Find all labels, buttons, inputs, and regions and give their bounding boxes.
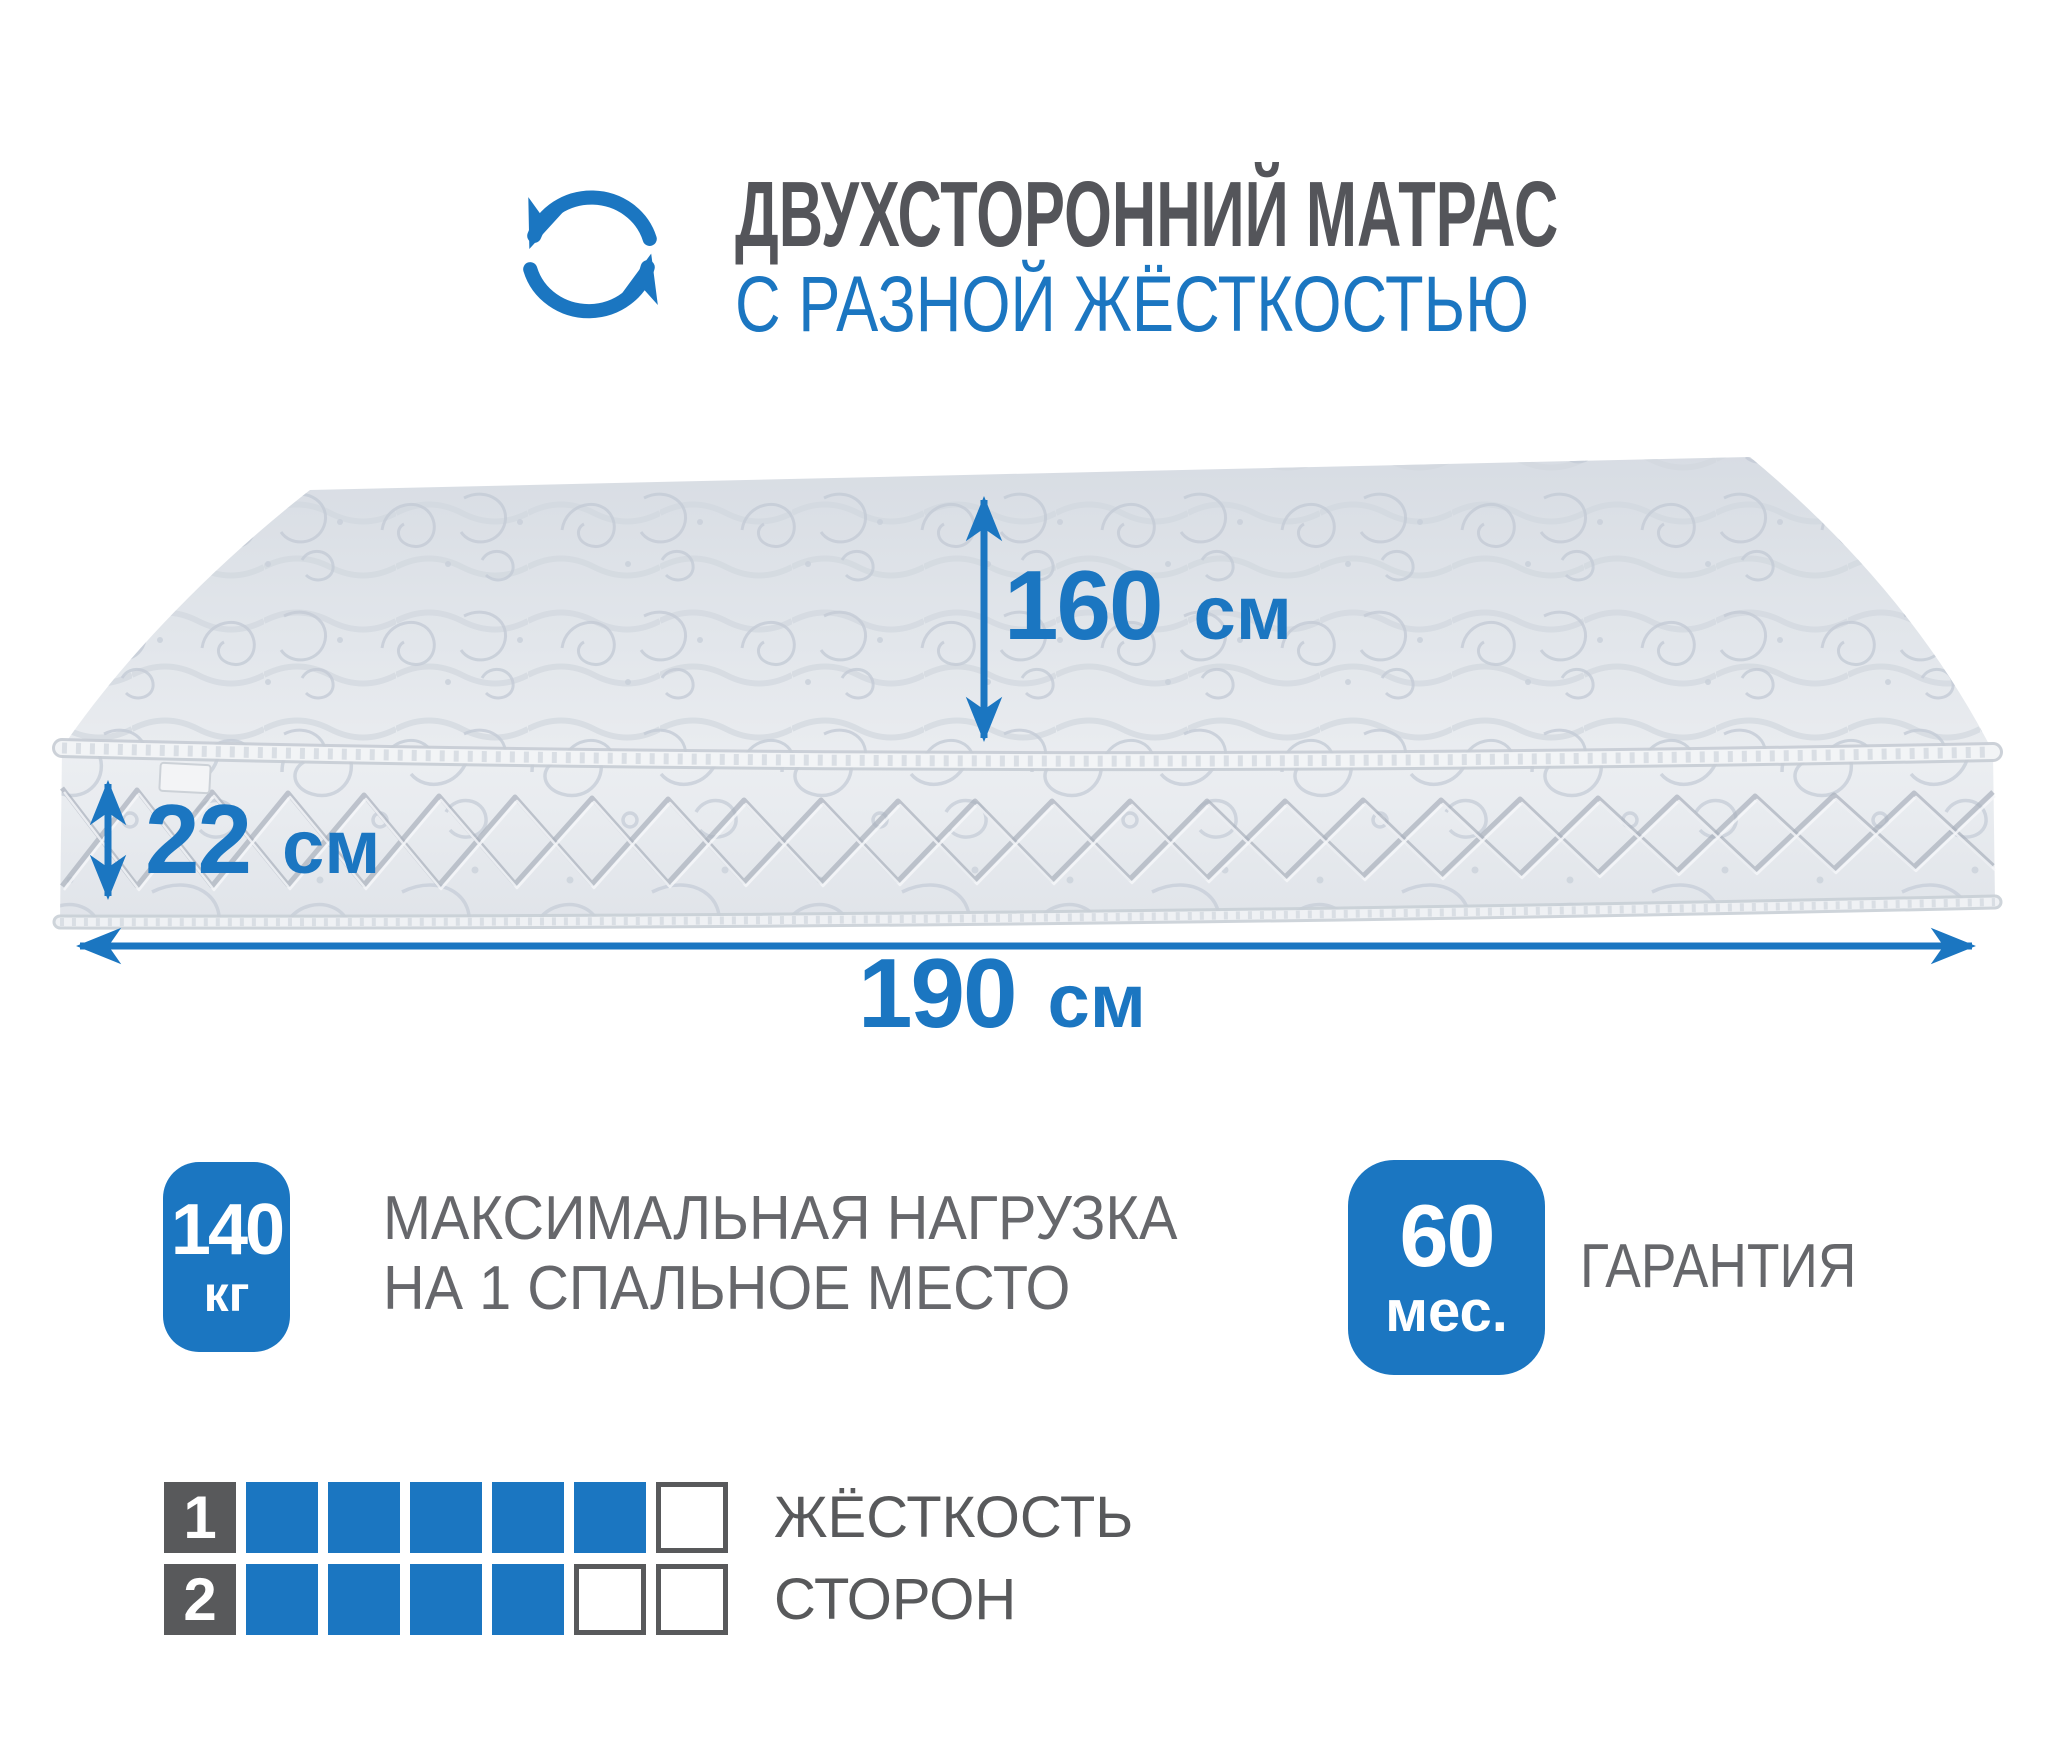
warranty-caption-line1: ГАРАНТИЯ — [1580, 1232, 1856, 1302]
firmness-caption: ЖЁСТКОСТЬ — [774, 1488, 1133, 1548]
firmness-square-filled — [492, 1564, 564, 1635]
width-value: 160 — [1004, 556, 1162, 654]
max-load-value: 140 — [171, 1193, 282, 1267]
max-load-badge: 140 кг — [163, 1162, 290, 1352]
firmness-square-filled — [410, 1564, 482, 1635]
page-title: ДВУХСТОРОННИЙ МАТРАС — [735, 168, 1558, 261]
length-unit: см — [1048, 964, 1147, 1040]
width-dimension-label: 160 см — [1004, 556, 1292, 654]
length-dimension-label: 190 см — [858, 944, 1146, 1042]
rotate-icon — [510, 176, 674, 328]
firmness-row-2: 2СТОРОН — [164, 1564, 1133, 1635]
height-value: 22 — [145, 790, 250, 888]
warranty-value: 60 — [1400, 1192, 1494, 1280]
firmness-row-1: 1ЖЁСТКОСТЬ — [164, 1482, 1133, 1553]
page-subtitle: С РАЗНОЙ ЖЁСТКОСТЬЮ — [735, 263, 1733, 345]
firmness-square-filled — [574, 1482, 646, 1553]
firmness-row-number: 1 — [164, 1482, 236, 1553]
firmness-scale: 1ЖЁСТКОСТЬ2СТОРОН — [164, 1482, 1133, 1646]
height-unit: см — [282, 810, 381, 886]
firmness-square-empty — [656, 1564, 728, 1635]
max-load-caption-line2: НА 1 СПАЛЬНОЕ МЕСТО — [383, 1254, 1177, 1324]
firmness-square-filled — [328, 1564, 400, 1635]
warranty-badge: 60 мес. — [1348, 1160, 1545, 1375]
height-dimension-label: 22 см — [145, 790, 381, 888]
warranty-unit: мес. — [1385, 1280, 1508, 1344]
max-load-unit: кг — [204, 1267, 250, 1321]
firmness-square-empty — [656, 1482, 728, 1553]
firmness-square-filled — [328, 1482, 400, 1553]
max-load-caption: МАКСИМАЛЬНАЯ НАГРУЗКА НА 1 СПАЛЬНОЕ МЕСТ… — [383, 1184, 1177, 1324]
mattress-infographic: ДВУХСТОРОННИЙ МАТРАС С РАЗНОЙ ЖЁСТКОСТЬЮ… — [0, 0, 2048, 1757]
firmness-square-filled — [246, 1482, 318, 1553]
firmness-square-filled — [246, 1564, 318, 1635]
max-load-caption-line1: МАКСИМАЛЬНАЯ НАГРУЗКА — [383, 1184, 1177, 1254]
firmness-square-empty — [574, 1564, 646, 1635]
warranty-caption: ГАРАНТИЯ — [1580, 1232, 1856, 1302]
header: ДВУХСТОРОННИЙ МАТРАС С РАЗНОЙ ЖЁСТКОСТЬЮ — [735, 168, 1983, 345]
firmness-square-filled — [410, 1482, 482, 1553]
firmness-row-number: 2 — [164, 1564, 236, 1635]
firmness-square-filled — [492, 1482, 564, 1553]
firmness-caption: СТОРОН — [774, 1570, 1016, 1630]
length-value: 190 — [858, 944, 1016, 1042]
width-unit: см — [1194, 576, 1293, 652]
